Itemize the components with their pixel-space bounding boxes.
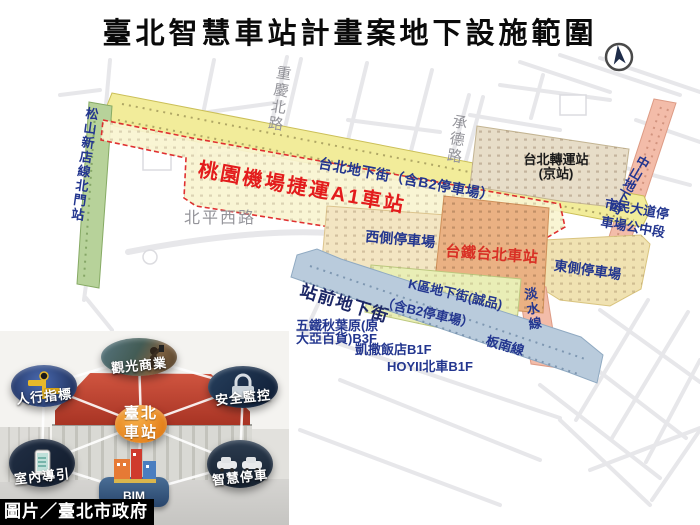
bim-building-model-icon <box>114 449 158 485</box>
bubble-security-monitoring: 安全監控 <box>208 366 278 408</box>
label-taipei-bus-station-line2: (京站) <box>506 167 606 181</box>
north-compass-icon <box>606 44 632 70</box>
label-taipei-bus-station-line1: 台北轉運站 <box>506 153 606 167</box>
label-hoyii: HOYII北車B1F <box>387 360 473 374</box>
bubble-indoor-guidance: 室內導引 <box>9 439 75 487</box>
bubble-tourism-commerce: 觀光商業 <box>101 338 177 376</box>
inset-smart-station-graphic: 觀光商業 人行指標 安全監控 <box>0 331 289 525</box>
page: 臺北智慧車站計畫案地下設施範圍 <box>0 0 700 525</box>
bubble-pedestrian-signage: 人行指標 <box>11 365 77 407</box>
street-label-beiping-w-rd: 北平西路 <box>184 211 256 228</box>
bubble-taipei-station-center: 臺北 車站 <box>115 405 167 443</box>
center-bubble-line2: 車站 <box>124 424 158 443</box>
credit-bar: 圖片／臺北市政府 <box>0 499 154 525</box>
center-bubble-line1: 臺北 <box>124 405 158 424</box>
label-caesar-hotel: 凱撒飯店B1F <box>355 343 432 357</box>
label-taipei-bus-station: 台北轉運站 (京站) <box>506 153 606 180</box>
bubble-smart-parking: 智慧停車 <box>207 440 273 488</box>
